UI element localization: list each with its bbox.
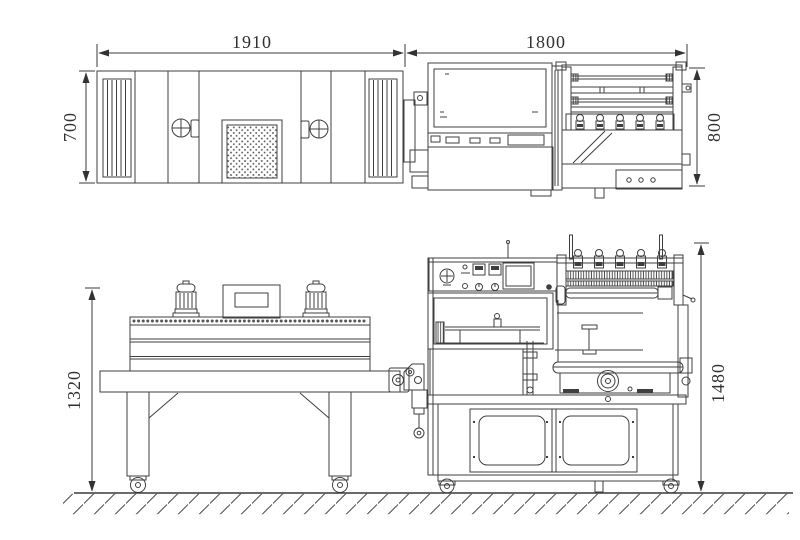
- tunnel-left-handle: [172, 119, 199, 137]
- release-lever: [691, 298, 695, 302]
- dimension-label-1800: 1800: [526, 32, 566, 52]
- dimension-sealer-top-width: 1800: [407, 32, 687, 67]
- sealer-right-caster: [663, 479, 679, 493]
- sealer-side-view: [428, 235, 695, 493]
- sealer-top-view: [404, 62, 691, 198]
- temp-controller-1: [473, 264, 485, 291]
- stop-button: [546, 284, 552, 290]
- dimension-sealer-top-depth: 800: [689, 68, 724, 186]
- sealer-table: [428, 395, 686, 404]
- tunnel-left-louver-panel: [103, 79, 131, 177]
- sealer-top-rear-plate: [616, 170, 682, 189]
- sealer-left-caster: [439, 479, 455, 493]
- film-knobs-side-view: [574, 250, 667, 269]
- tunnel-motor-left: [173, 281, 199, 317]
- tunnel-table: [100, 371, 400, 392]
- sealer-hood-window: [428, 293, 553, 349]
- leg-braces: [149, 393, 329, 418]
- sealer-top-foot: [531, 190, 551, 196]
- shrink-tunnel-top-view: [97, 71, 403, 183]
- infeed-transfer-bracket: [389, 364, 427, 438]
- dimension-tunnel-side-height: 1320: [64, 288, 100, 491]
- tunnel-right-louver-panel: [369, 79, 397, 177]
- door-window-left: [479, 416, 545, 465]
- touchscreen: [503, 263, 534, 289]
- tunnel-vent-grid: [222, 120, 282, 183]
- film-perforator-assembly: [556, 235, 695, 305]
- film-web-lines: [555, 300, 643, 362]
- sealer-top-control-strip: [428, 133, 552, 147]
- shrink-tunnel-side-view: [100, 281, 427, 493]
- tunnel-right-caster: [332, 476, 348, 493]
- tunnel-left-leg: [127, 392, 149, 476]
- dimension-label-700: 700: [60, 112, 80, 142]
- dimension-tunnel-top-width: 1910: [97, 32, 405, 67]
- sealer-cabinet: [433, 404, 679, 493]
- cabinet-foot: [595, 481, 603, 492]
- indicator-light: [463, 265, 467, 269]
- tunnel-left-caster: [130, 476, 146, 493]
- sealer-mid-panel: [430, 349, 523, 395]
- dimension-sealer-side-height: 1480: [694, 243, 728, 491]
- discharge-conveyor: [553, 362, 683, 402]
- tunnel-right-leg: [329, 392, 351, 476]
- sealer-top-body: [428, 147, 553, 190]
- tunnel-motor-right: [303, 281, 329, 317]
- temp-controller-2: [489, 264, 501, 291]
- dimension-label-1910: 1910: [232, 32, 272, 52]
- dimension-label-1480: 1480: [708, 363, 728, 403]
- tunnel-control-box: [223, 285, 280, 318]
- dimension-label-1320: 1320: [64, 370, 84, 410]
- gusset-brace-top-view: [573, 131, 612, 163]
- sealer-top-rear-foot: [595, 188, 604, 198]
- dimension-tunnel-top-depth: 700: [60, 71, 95, 183]
- guide-post-left: [570, 235, 573, 259]
- sealer-hood-top: [428, 63, 552, 133]
- film-knobs-top-view: [576, 115, 664, 130]
- tunnel-right-handle: [301, 120, 328, 138]
- dimension-label-800: 800: [704, 112, 724, 142]
- drawing-page: 1910 1800 700 800 1320 1480: [0, 0, 800, 540]
- door-window-right: [563, 416, 629, 465]
- cabinet-doors: [470, 409, 637, 472]
- tunnel-chamber: [130, 317, 370, 371]
- ground-hatching: [62, 493, 793, 514]
- sealer-control-panel: [429, 241, 557, 292]
- sealer-film-roller-deck: [556, 62, 691, 198]
- sealer-right-rail: [678, 305, 692, 397]
- technical-drawing-canvas: 1910 1800 700 800 1320 1480: [0, 0, 800, 540]
- sealer-top-left-attachment: [404, 92, 428, 188]
